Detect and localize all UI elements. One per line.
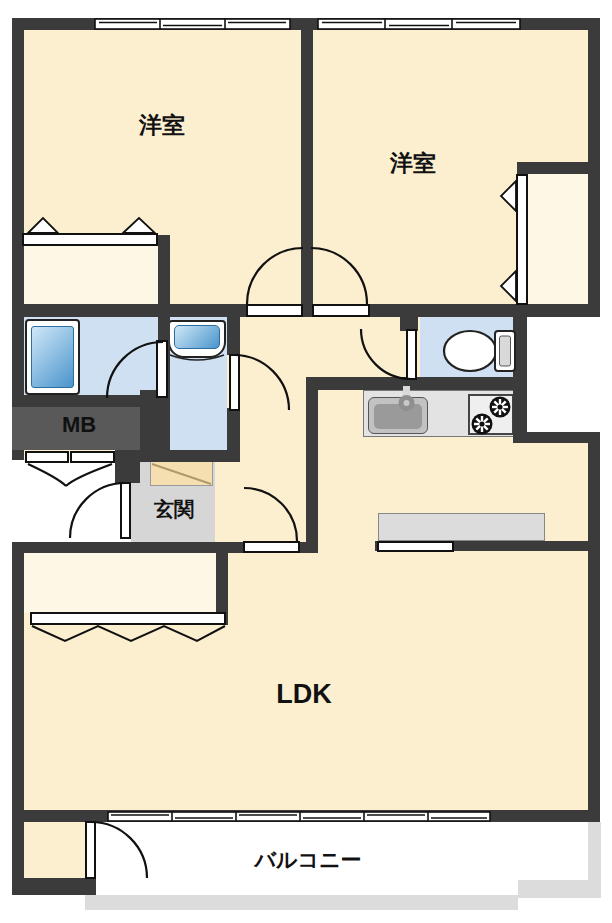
balcony-label: バルコニー [206,848,410,871]
wall-ldk-bottom [12,810,600,822]
wall-hallway-top [12,304,600,317]
room1-label: 洋室 [100,113,224,138]
ldk-closet-accordion-strip [30,612,226,625]
stove-icon [468,394,514,435]
wall-washroom-right-top [227,317,240,355]
shoe-cabinet-icon [150,461,213,486]
wall-top [12,18,600,30]
mb-door-leaf-right [70,451,115,463]
ldk-label: LDK [244,680,364,710]
kitchen-sink-basin [374,404,422,429]
entrance-label: 玄関 [132,498,216,520]
ldk-door-sill [243,541,300,553]
bathtub-water [31,326,74,388]
mb-door-leaf-left [25,451,69,463]
closet1-bifold-strip [22,233,158,246]
wall-closet2-top [517,162,600,174]
floor-plan: 洋室 洋室 MB 玄関 LDK バルコニー [0,0,612,923]
room2-door-sill [312,304,370,317]
closet2-bifold-strip [516,174,528,305]
front-door-leaf [120,482,131,539]
wall-kitchen-left [306,377,318,553]
counter-pass-through [377,541,454,552]
toilet-door-leaf [406,329,417,380]
balcony-storage-floor [24,822,86,878]
ldk-closet-floor [24,553,216,613]
wall-left-lower [12,543,24,895]
washroom-door-leaf [229,354,240,411]
balcony-rail-step [518,880,601,898]
washbasin-bowl [174,325,220,349]
wall-right-lower [588,443,600,822]
wall-mb-stub [115,450,140,483]
toilet-floor [420,317,513,377]
room1-door-sill [246,304,303,317]
balcony-rail-bottom [85,895,518,910]
wall-washroom-right-bottom [227,408,240,452]
closet2-floor [527,174,588,305]
wall-storage-bottom [12,878,96,895]
bathroom-door-leaf [156,340,168,398]
wall-toilet-right [513,317,527,443]
exterior-corridor [0,460,131,543]
wall-washroom-bottom [140,450,240,462]
wall-between-rooms [301,30,313,317]
wall-notch-bottom [513,432,600,443]
bar-counter [378,513,545,541]
room2-label: 洋室 [351,151,475,176]
storage-door-leaf [85,821,96,879]
balcony-rail-right [588,822,601,882]
meter-box-label: MB [37,413,121,437]
exterior-notch [527,317,588,433]
